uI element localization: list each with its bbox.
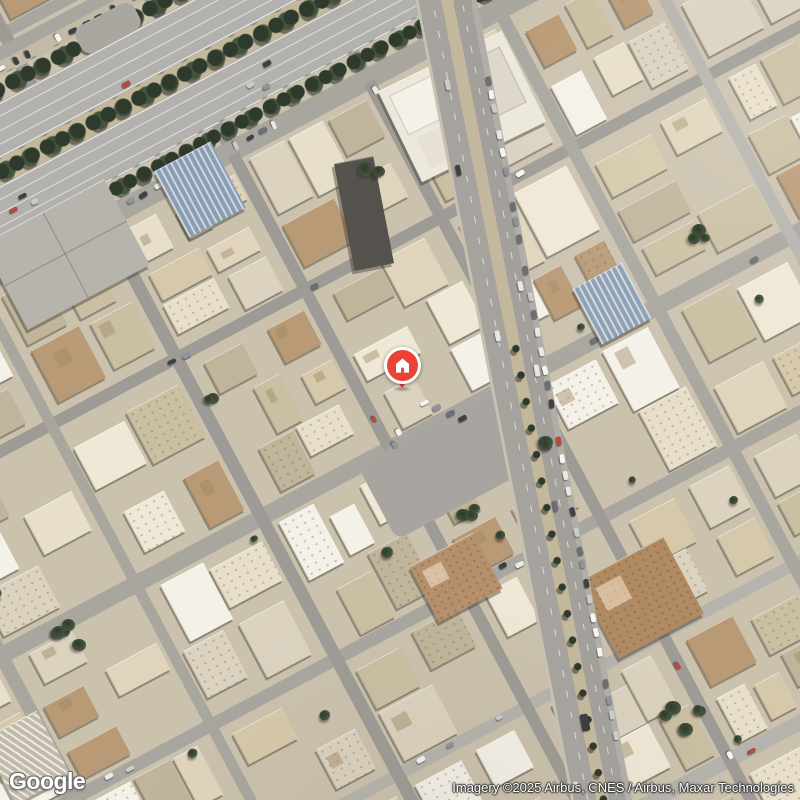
tree [465, 510, 477, 521]
tree [659, 710, 672, 722]
tree [373, 166, 385, 177]
tree [358, 162, 373, 176]
tree [52, 626, 66, 639]
roof-line [42, 213, 88, 298]
blue-roof-building-2 [572, 263, 651, 345]
oval-drive [72, 0, 144, 57]
car [18, 192, 28, 200]
brown-building-2 [409, 533, 502, 622]
tree [693, 705, 703, 714]
tree [540, 440, 552, 451]
map-overlay [0, 0, 800, 800]
map-attribution: Imagery ©2025 Airbus, CNES / Airbus, Max… [452, 780, 794, 795]
satellite-map-canvas[interactable]: Google Imagery ©2025 Airbus, CNES / Airb… [0, 0, 800, 800]
car [8, 206, 18, 214]
car [432, 404, 443, 413]
car [31, 197, 40, 205]
tree [204, 395, 214, 404]
car [419, 399, 429, 407]
home-place-marker[interactable] [383, 347, 423, 393]
car [395, 428, 403, 437]
warehouse-roof [0, 179, 150, 329]
tree [688, 233, 700, 244]
roof-section [595, 575, 633, 611]
marker-circle [384, 347, 421, 384]
roof-section [422, 561, 450, 588]
home-icon [393, 356, 412, 375]
tree [679, 723, 693, 736]
google-watermark[interactable]: Google [9, 768, 85, 795]
tree [72, 639, 85, 651]
tree [700, 234, 709, 242]
blue-roof-building [154, 141, 246, 237]
